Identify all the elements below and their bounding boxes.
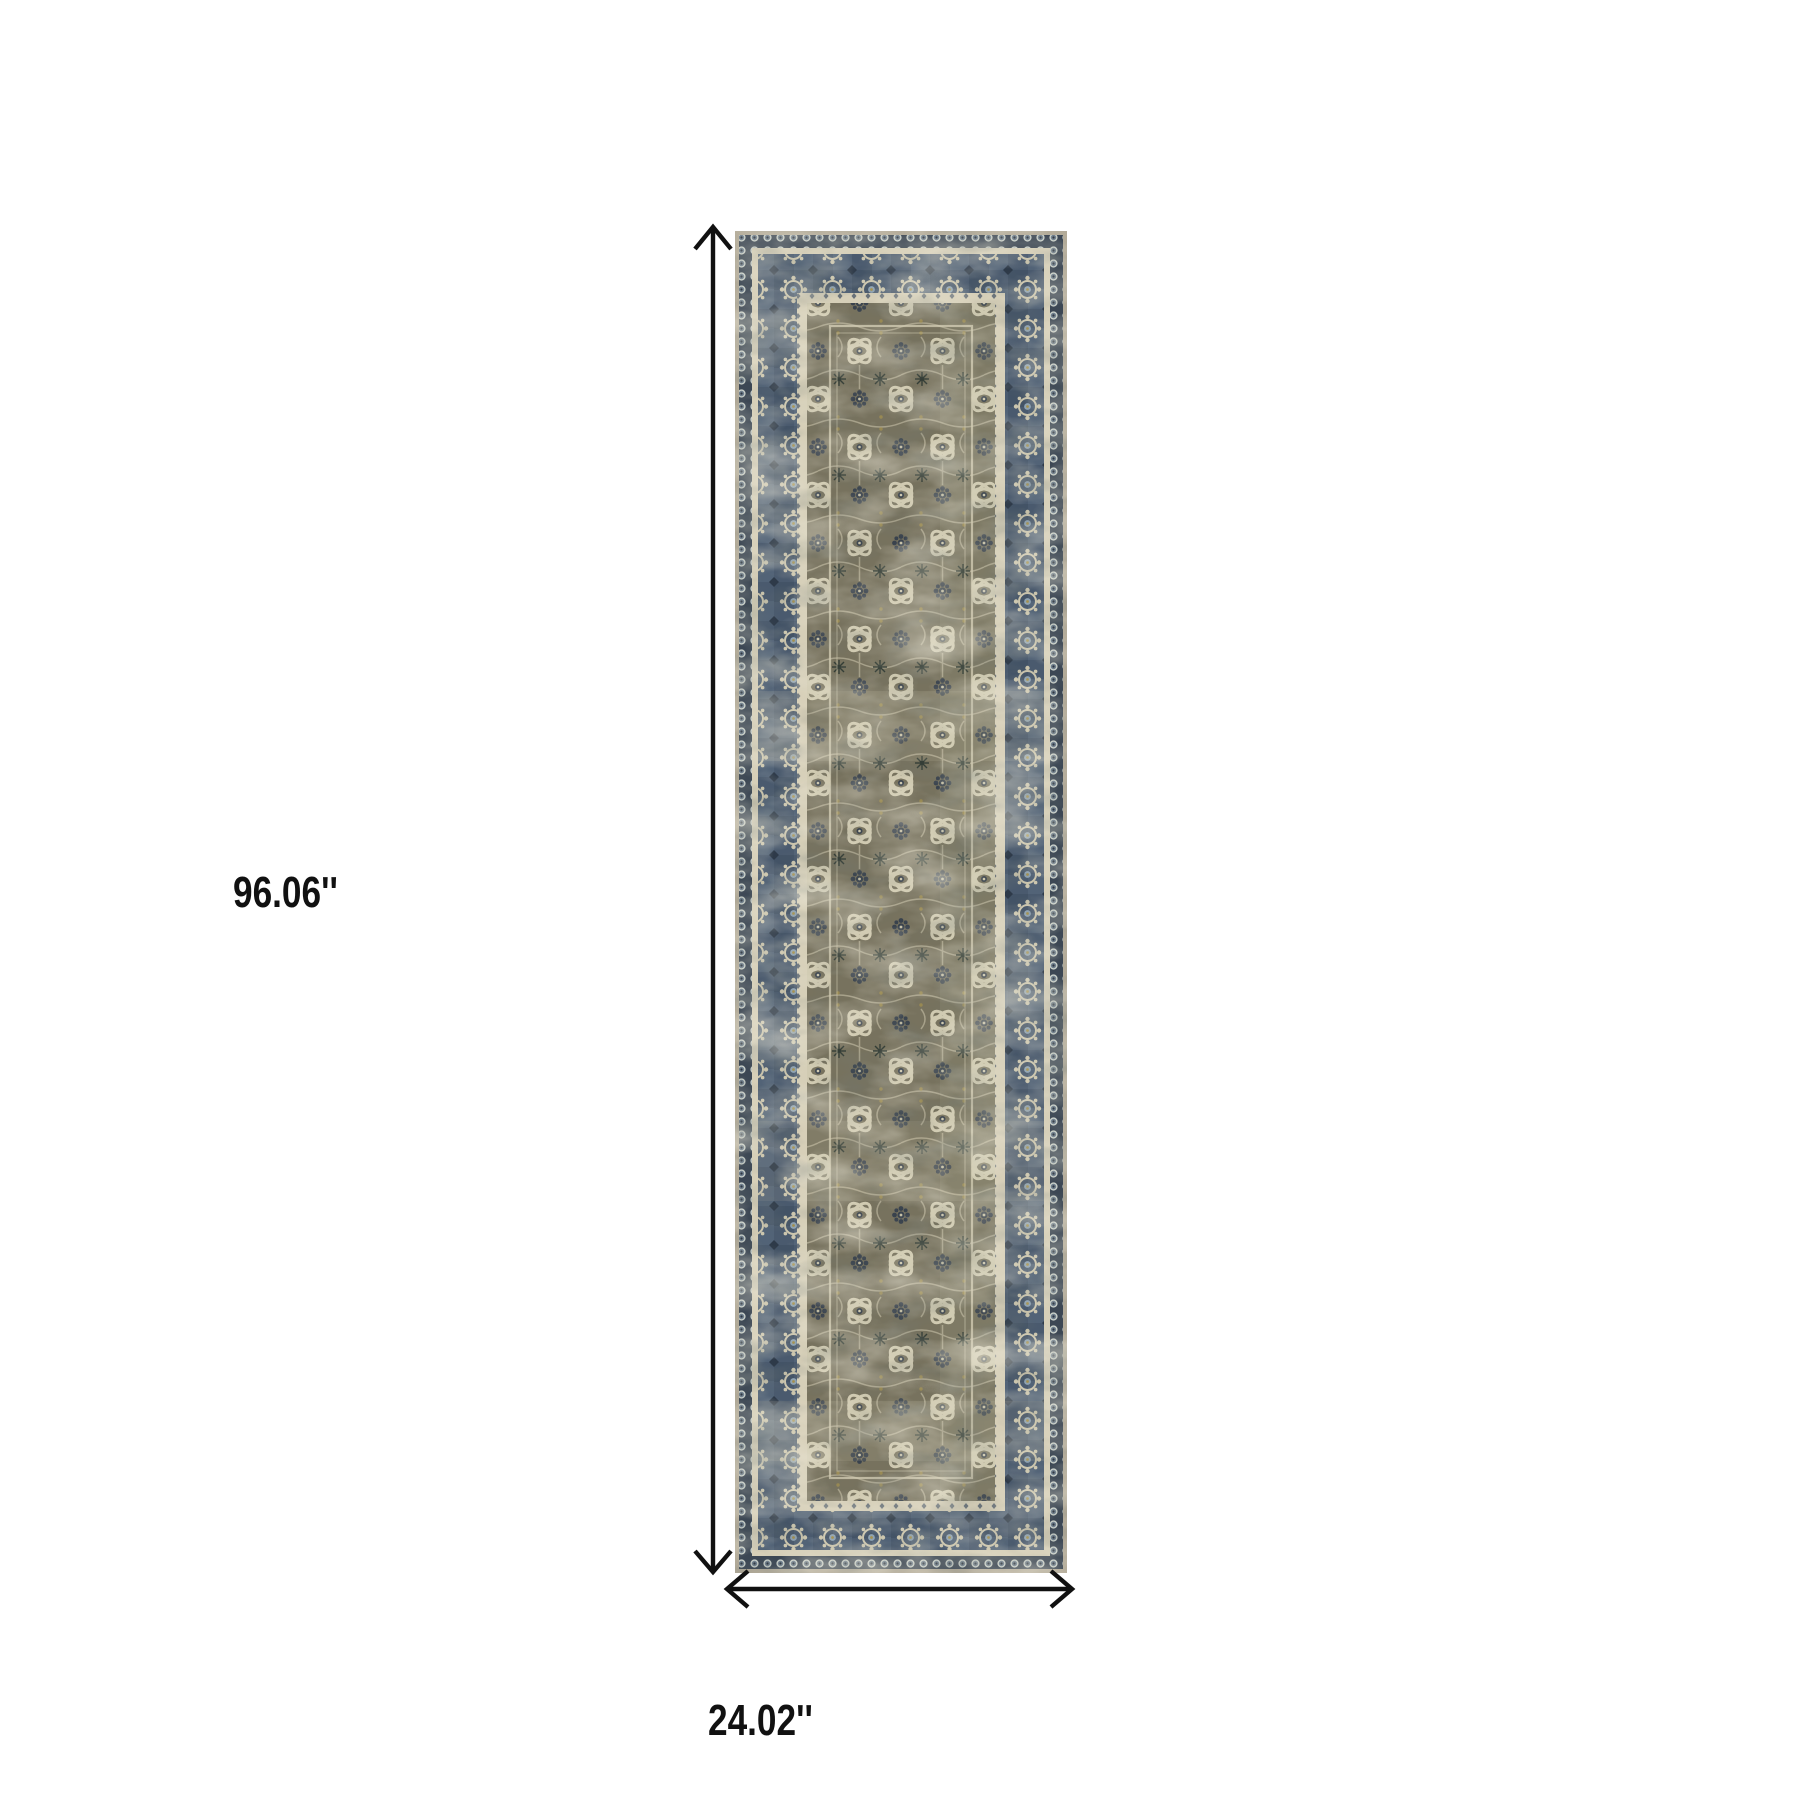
arrowhead-right-icon [1051, 1571, 1072, 1607]
width-dimension-label: 24.02'' [708, 1699, 813, 1743]
height-dimension-label: 96.06'' [233, 871, 338, 915]
arrowhead-left-icon [727, 1571, 748, 1607]
rug-image [735, 231, 1067, 1573]
rug-distress-dark [735, 231, 1067, 1573]
arrowhead-down-icon [695, 1551, 731, 1572]
product-dimension-diagram: 96.06'' 24.02'' [0, 0, 1800, 1800]
arrowhead-up-icon [695, 227, 731, 249]
width-dimension-arrow [727, 1571, 1072, 1607]
height-dimension-arrow [695, 227, 731, 1572]
